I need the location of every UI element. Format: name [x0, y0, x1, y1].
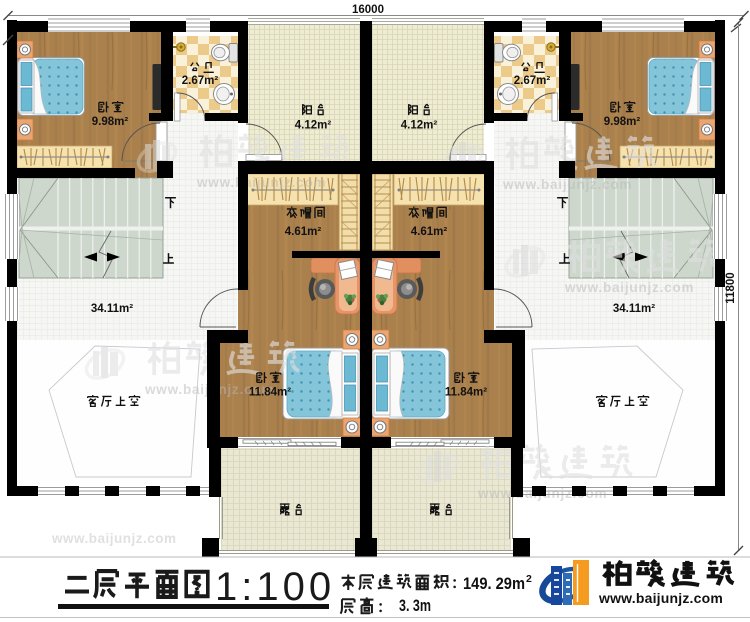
svg-text:9.98m²: 9.98m²	[92, 116, 129, 128]
svg-text:4.12m²: 4.12m²	[295, 120, 332, 132]
svg-text:4.12m²: 4.12m²	[401, 120, 438, 132]
svg-text:1:100: 1:100	[215, 565, 335, 609]
svg-text:www.baijunjz.com: www.baijunjz.com	[51, 531, 177, 546]
svg-text:www.baijunjz.com: www.baijunjz.com	[598, 590, 723, 606]
svg-text:11800: 11800	[725, 272, 737, 303]
svg-text:9.98m²: 9.98m²	[604, 116, 641, 128]
svg-text:2: 2	[526, 573, 532, 585]
svg-text:11.84m²: 11.84m²	[249, 387, 291, 399]
svg-text:34.11m²: 34.11m²	[91, 303, 133, 315]
svg-text:149. 29m: 149. 29m	[463, 575, 525, 593]
svg-text:2.67m²: 2.67m²	[514, 75, 551, 87]
svg-text:11.84m²: 11.84m²	[445, 387, 487, 399]
svg-text:34.11m²: 34.11m²	[613, 303, 655, 315]
svg-text:4.61m²: 4.61m²	[285, 226, 322, 238]
svg-text:2.67m²: 2.67m²	[182, 75, 219, 87]
svg-text:16000: 16000	[352, 4, 384, 16]
svg-text:4.61m²: 4.61m²	[411, 226, 448, 238]
svg-text:3. 3m: 3. 3m	[399, 597, 431, 615]
